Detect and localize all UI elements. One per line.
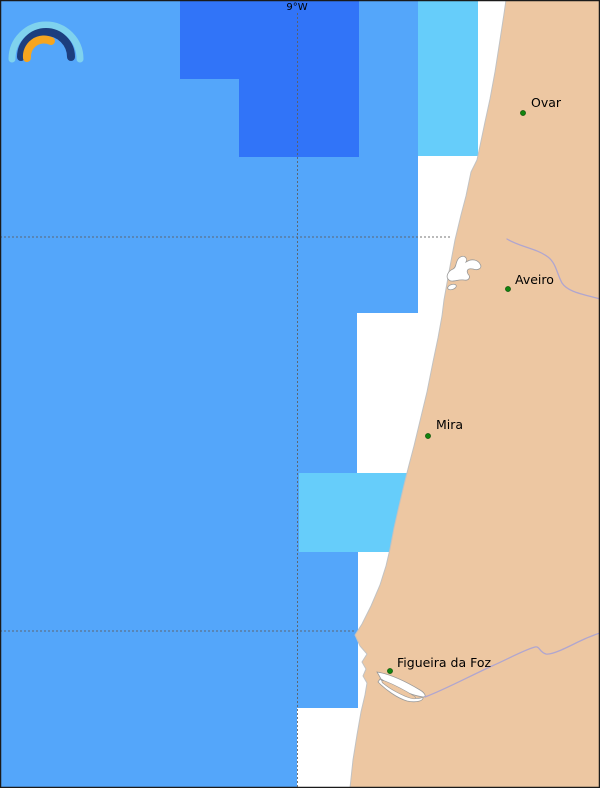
map-canvas[interactable]: 9°W OvarAveiroMiraFigueira da Foz [0,0,600,788]
city-label-mira[interactable]: Mira [436,417,463,432]
city-dot-figueira-da-foz[interactable] [387,668,392,673]
wave-cell-light-north [418,0,478,156]
city-label-ovar[interactable]: Ovar [531,95,562,110]
city-dot-aveiro[interactable] [505,286,510,291]
wave-cell-dark-north [180,0,359,79]
city-label-aveiro[interactable]: Aveiro [515,272,554,287]
meridian-9w-label: 9°W [286,2,307,13]
city-label-figueira-da-foz[interactable]: Figueira da Foz [397,655,492,670]
city-dot-ovar[interactable] [520,110,525,115]
city-dot-mira[interactable] [425,433,430,438]
wave-cell-dark-south [239,79,359,157]
